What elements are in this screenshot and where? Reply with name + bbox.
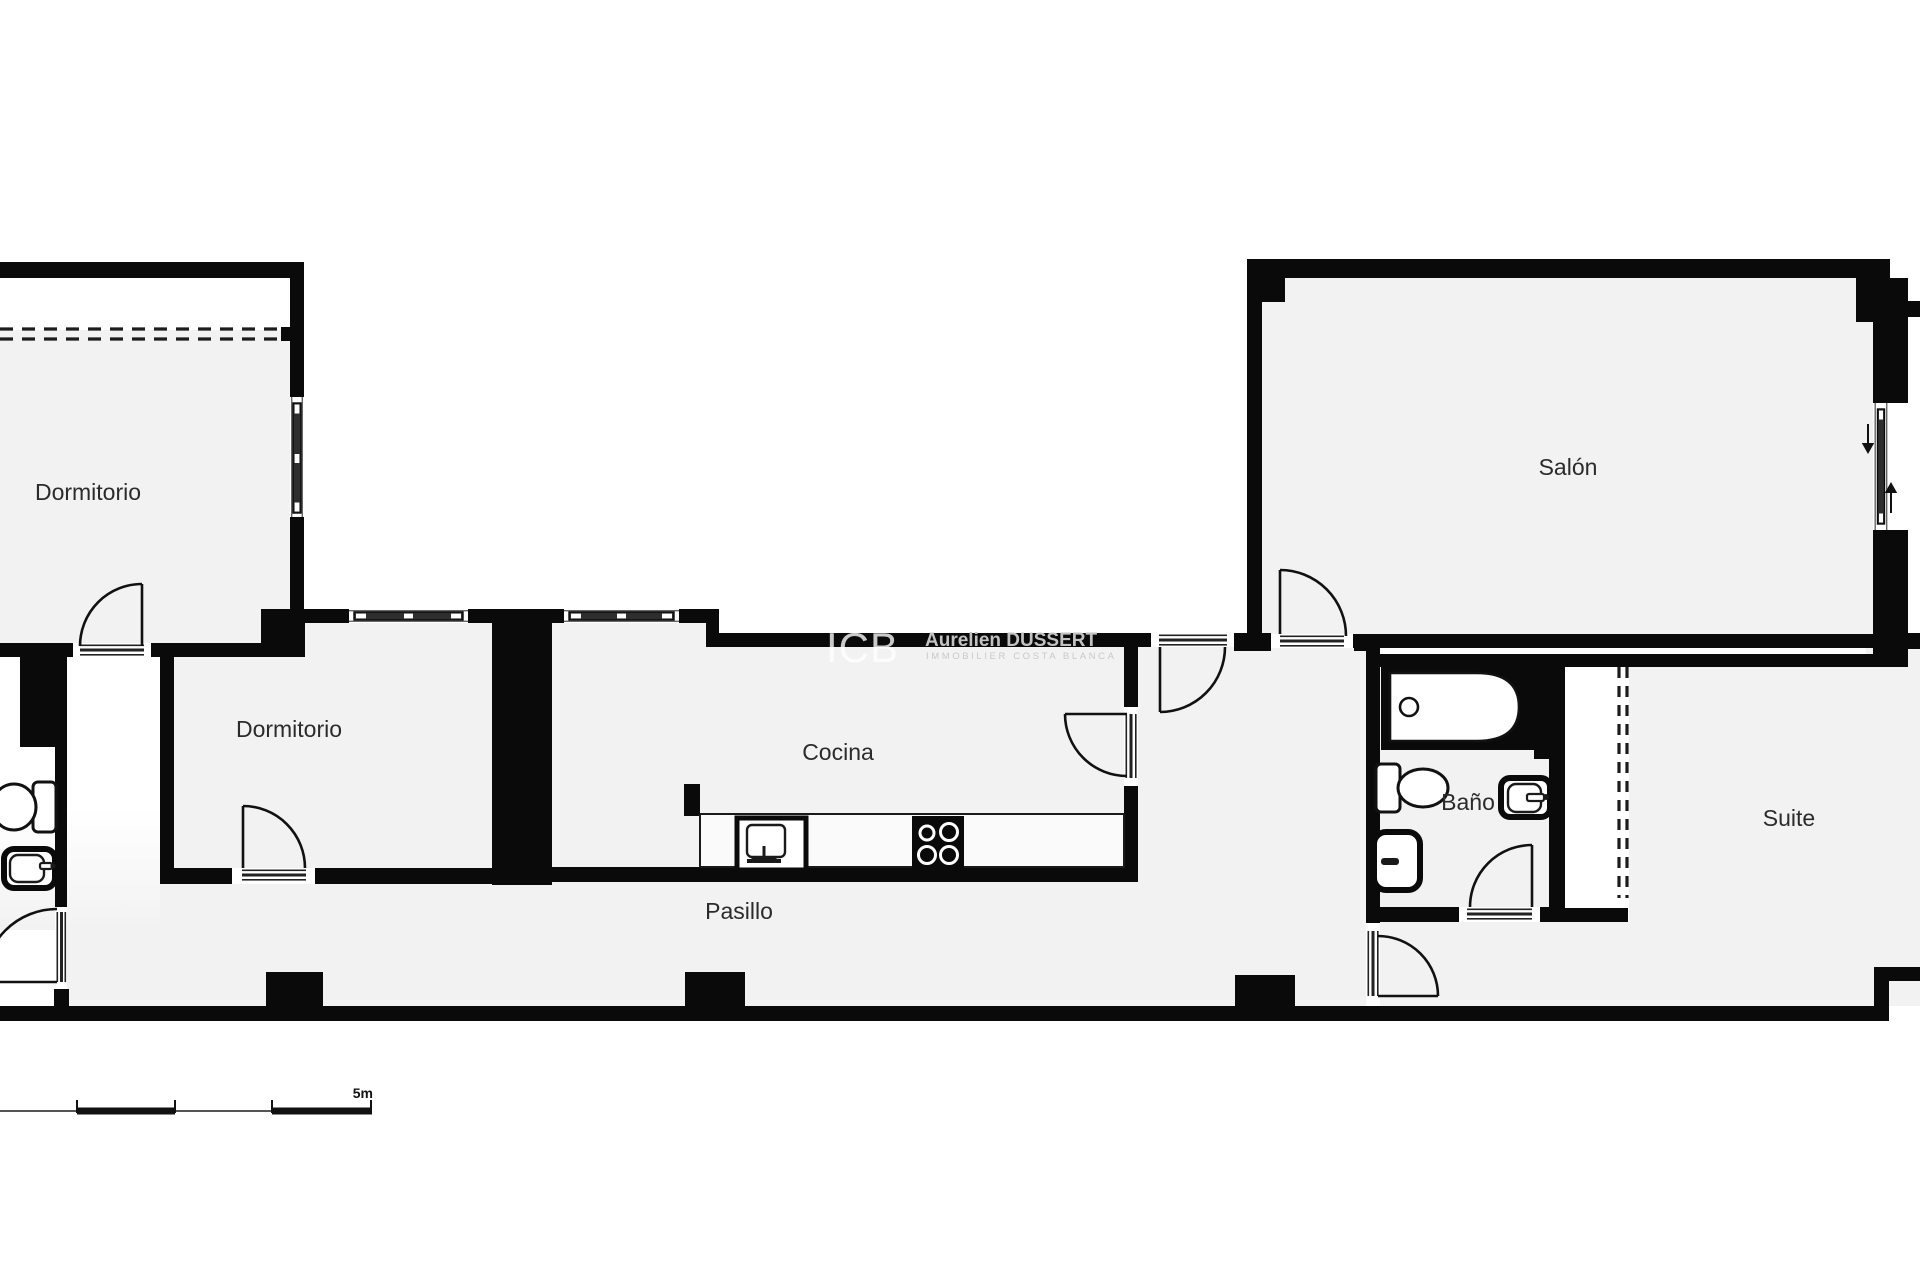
svg-text:Cocina: Cocina bbox=[802, 739, 874, 765]
svg-text:Dormitorio: Dormitorio bbox=[35, 479, 141, 505]
svg-text:Salón: Salón bbox=[1539, 454, 1598, 480]
svg-text:Pasillo: Pasillo bbox=[705, 898, 773, 924]
svg-text:Aurelien DUSSERT: Aurelien DUSSERT bbox=[925, 630, 1097, 651]
svg-text:Dormitorio: Dormitorio bbox=[236, 716, 342, 742]
svg-text:ICB: ICB bbox=[826, 624, 899, 671]
svg-text:IMMOBILIER COSTA BLANCA: IMMOBILIER COSTA BLANCA bbox=[926, 651, 1117, 662]
svg-text:Suite: Suite bbox=[1763, 805, 1815, 831]
svg-text:Baño: Baño bbox=[1441, 789, 1495, 815]
svg-text:5m: 5m bbox=[353, 1085, 373, 1101]
